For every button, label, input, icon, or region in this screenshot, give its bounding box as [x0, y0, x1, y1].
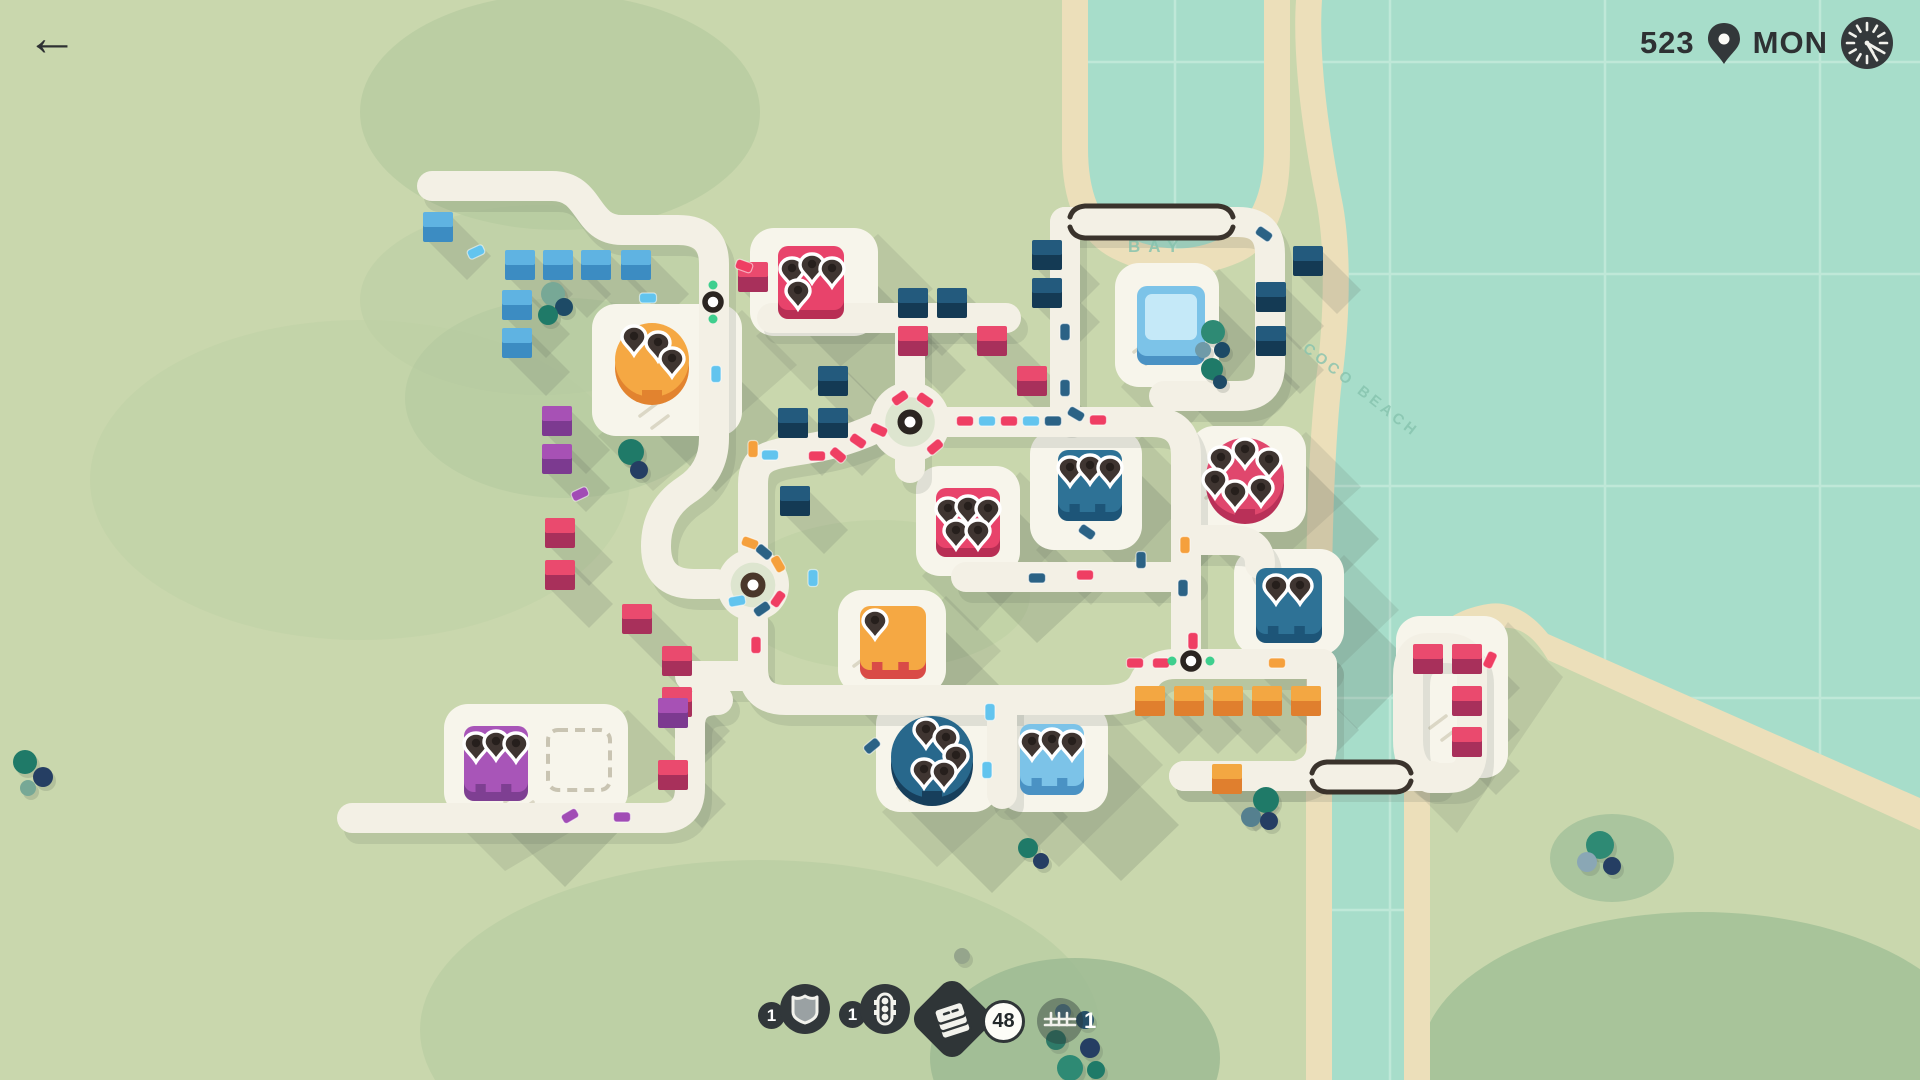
house	[622, 604, 652, 634]
tree	[1213, 375, 1227, 389]
destination	[860, 606, 926, 679]
traffic-light-icon	[870, 992, 900, 1026]
house	[818, 366, 848, 396]
house	[1452, 644, 1482, 674]
house	[502, 328, 532, 358]
house	[778, 408, 808, 438]
bottom-upgrade-bar: 1 1	[744, 972, 1144, 1072]
tree	[1214, 342, 1230, 358]
tree	[1260, 812, 1278, 830]
score-value: 523	[1640, 25, 1695, 61]
house	[898, 326, 928, 356]
house	[898, 288, 928, 318]
house	[1291, 686, 1321, 716]
tree	[33, 767, 53, 787]
roundabout-center	[901, 413, 919, 431]
house	[505, 250, 535, 280]
car	[1023, 416, 1040, 426]
bridge-icon	[1043, 1009, 1077, 1033]
house	[621, 250, 651, 280]
car	[957, 416, 974, 426]
house	[1032, 240, 1062, 270]
house	[542, 406, 572, 436]
traffic-light-upgrade-button[interactable]	[860, 984, 910, 1034]
car	[1090, 415, 1107, 425]
car	[711, 366, 721, 383]
house	[1213, 686, 1243, 716]
destination	[1256, 568, 1322, 643]
traffic-light-dot	[1168, 657, 1177, 666]
traffic-light-dot	[709, 281, 718, 290]
car	[985, 704, 995, 721]
traffic-light-count: 1	[848, 1005, 857, 1025]
destination	[1137, 286, 1205, 365]
tree	[954, 948, 970, 964]
house	[542, 444, 572, 474]
house	[1135, 686, 1165, 716]
car	[1029, 573, 1046, 583]
house	[1256, 326, 1286, 356]
car	[1178, 580, 1188, 597]
tree	[1241, 807, 1261, 827]
day-label: MON	[1753, 25, 1828, 61]
tree	[20, 780, 36, 796]
house	[543, 250, 573, 280]
house	[658, 760, 688, 790]
house	[545, 518, 575, 548]
tree	[1195, 342, 1211, 358]
car	[809, 451, 826, 461]
house	[502, 290, 532, 320]
land-patch	[1420, 912, 1920, 1080]
tree	[1033, 853, 1049, 869]
house	[662, 646, 692, 676]
tree	[1577, 852, 1597, 872]
clock-icon[interactable]	[1840, 16, 1894, 70]
house	[1212, 764, 1242, 794]
car	[1188, 633, 1198, 650]
car	[1060, 380, 1070, 397]
house	[780, 486, 810, 516]
house	[1032, 278, 1062, 308]
car	[1077, 570, 1094, 580]
car	[748, 441, 758, 458]
back-button[interactable]: ←	[26, 12, 78, 64]
traffic-light-dot	[1206, 657, 1215, 666]
house	[1256, 282, 1286, 312]
game-map[interactable]: BAYCOCO BEACH	[0, 0, 1920, 1080]
car	[1045, 416, 1062, 426]
water-label: BAY	[1128, 237, 1186, 256]
house	[1452, 686, 1482, 716]
tree	[538, 305, 558, 325]
roundabout-center	[744, 576, 762, 594]
traffic-light-dot	[709, 315, 718, 324]
destination	[891, 716, 973, 806]
back-arrow-icon: ←	[26, 9, 78, 67]
house	[1293, 246, 1323, 276]
tree	[630, 461, 648, 479]
house	[1017, 366, 1047, 396]
house	[658, 698, 688, 728]
bridge-count: 1	[1084, 1008, 1096, 1034]
destination	[936, 488, 1000, 557]
car	[1001, 416, 1018, 426]
car	[1060, 324, 1070, 341]
shield-icon	[788, 992, 822, 1026]
car	[1136, 552, 1146, 569]
road-tiles-count-badge: 48	[982, 1000, 1025, 1043]
house	[1174, 686, 1204, 716]
car	[1269, 658, 1286, 668]
destination	[778, 246, 844, 319]
house	[818, 408, 848, 438]
motorway-count: 1	[767, 1006, 776, 1026]
car	[979, 416, 996, 426]
game-screen: BAYCOCO BEACH ← 523 MON	[0, 0, 1920, 1080]
traffic-light	[705, 294, 721, 310]
bridge-upgrade-button[interactable]	[1037, 998, 1083, 1044]
traffic-light	[1183, 653, 1199, 669]
tree	[1018, 838, 1038, 858]
house	[1252, 686, 1282, 716]
destination	[615, 323, 689, 405]
destination	[1058, 450, 1122, 521]
tree	[1603, 857, 1621, 875]
car	[1153, 658, 1170, 668]
top-status-bar: 523 MON	[1640, 16, 1894, 70]
car	[1127, 658, 1144, 668]
car	[1180, 537, 1190, 554]
tree	[13, 750, 37, 774]
destination	[1020, 724, 1084, 795]
house	[545, 560, 575, 590]
car	[808, 570, 818, 587]
house	[423, 212, 453, 242]
house	[1413, 644, 1443, 674]
motorway-upgrade-button[interactable]	[780, 984, 830, 1034]
road-tiles-count: 48	[992, 1010, 1014, 1033]
car	[640, 293, 657, 303]
house	[977, 326, 1007, 356]
car	[762, 450, 779, 460]
house	[937, 288, 967, 318]
car	[751, 637, 761, 654]
tile-stack-icon	[926, 993, 978, 1045]
house	[581, 250, 611, 280]
tree	[1201, 320, 1225, 344]
car	[728, 595, 746, 608]
house	[1452, 727, 1482, 757]
location-pin-icon	[1707, 21, 1741, 65]
car	[614, 812, 631, 822]
car	[982, 762, 992, 779]
